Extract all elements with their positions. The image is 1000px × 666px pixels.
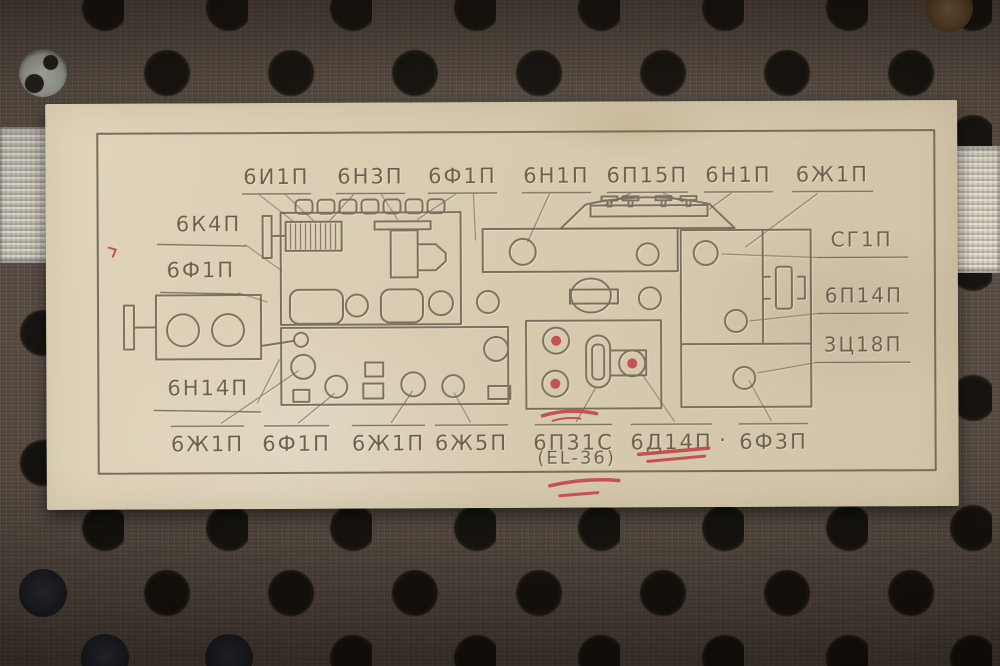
if-transformer-oval xyxy=(477,278,661,313)
tube-label-bottom-3: 6Ж1П xyxy=(352,431,425,455)
tube-label-top-6: 6Н1П xyxy=(705,163,771,187)
antenna-terminal-arc xyxy=(561,196,735,229)
tube-equivalent-note: (EL-36) xyxy=(537,448,616,469)
tube-label-top-5: 6П15П xyxy=(607,163,689,187)
tube-label-left-2: 6Ф1П xyxy=(166,258,235,282)
tube-label-left-3: 6Н14П xyxy=(167,376,249,400)
tube-label-top-3: 6Ф1П xyxy=(428,164,497,188)
label-separator-dot: · xyxy=(719,428,728,452)
chassis-diagram: 6И1П 6Н3П 6Ф1П 6Н1П 6П15П 6Н1П 6Ж1П 6К4П… xyxy=(45,100,959,510)
tube-label-top-1: 6И1П xyxy=(243,165,309,189)
tube-label-top-4: 6Н1П xyxy=(523,164,589,188)
if-band-block xyxy=(483,228,678,272)
tube-label-bottom-1: 6Ж1П xyxy=(171,432,244,456)
tube-label-right-1: СГ1П xyxy=(831,227,893,251)
power-transformer xyxy=(763,267,805,309)
tube-label-top-2: 6Н3П xyxy=(337,164,403,188)
coil-fins xyxy=(286,222,342,251)
tube-label-right-3: 3Ц18П xyxy=(824,332,903,356)
tube-label-bottom-7: 6Ф3П xyxy=(739,430,808,454)
tube-label-top-7: 6Ж1П xyxy=(796,162,869,186)
tube-label-right-2: 6П14П xyxy=(825,283,903,307)
main-chassis-block xyxy=(263,199,462,325)
pegboard-hole-light xyxy=(19,49,67,97)
lower-chassis-block xyxy=(281,327,510,405)
photo-scene: 6И1П 6Н3П 6Ф1П 6Н1П 6П15П 6Н1П 6Ж1П 6К4П… xyxy=(0,0,1000,666)
tube-label-bottom-4: 6Ж5П xyxy=(435,431,508,455)
tuner-block xyxy=(124,295,294,360)
label-rules xyxy=(154,191,911,426)
tube-label-left-1: 6К4П xyxy=(176,212,242,236)
red-annotations xyxy=(109,245,709,498)
fabric-strap-right xyxy=(952,146,1000,273)
red-socket-dots xyxy=(550,335,637,388)
pegboard-hole-blue xyxy=(19,569,67,617)
tube-label-bottom-2: 6Ф1П xyxy=(262,432,331,456)
tube-layout-label: 6И1П 6Н3П 6Ф1П 6Н1П 6П15П 6Н1П 6Ж1П 6К4П… xyxy=(45,100,959,510)
transformer-tee xyxy=(375,221,446,277)
output-tubes-block xyxy=(526,320,661,409)
